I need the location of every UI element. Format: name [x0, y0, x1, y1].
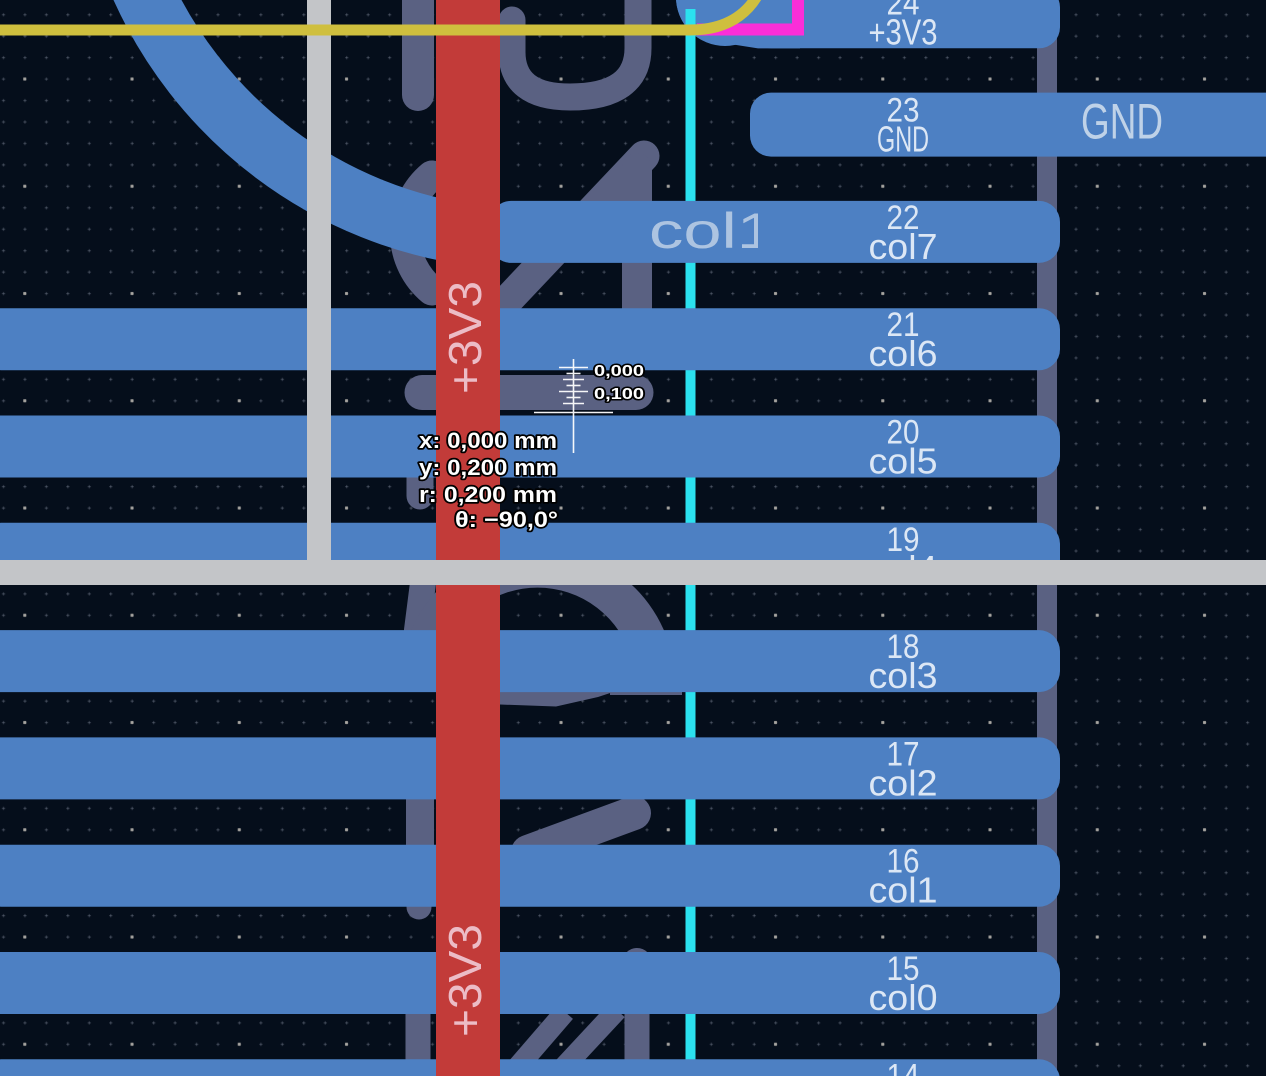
svg-text:GND: GND — [1081, 94, 1163, 150]
svg-text:col7: col7 — [869, 226, 938, 267]
svg-text:+3V3: +3V3 — [869, 11, 938, 52]
svg-text:col0: col0 — [869, 977, 938, 1018]
svg-text:+3V3: +3V3 — [439, 924, 491, 1037]
svg-text:0,100: 0,100 — [594, 386, 644, 403]
svg-text:GND: GND — [877, 119, 929, 160]
svg-text:0,000: 0,000 — [594, 363, 644, 380]
svg-text:θ: −90,0°: θ: −90,0° — [455, 507, 558, 532]
svg-text:x: 0,000 mm: x: 0,000 mm — [419, 428, 557, 453]
svg-text:col3: col3 — [869, 655, 938, 696]
svg-text:+3V3: +3V3 — [439, 281, 491, 394]
svg-text:y: 0,200 mm: y: 0,200 mm — [419, 455, 557, 480]
svg-text:col1: col1 — [649, 203, 775, 259]
svg-text:col1: col1 — [869, 870, 938, 911]
svg-text:r: 0,200 mm: r: 0,200 mm — [419, 482, 557, 507]
svg-text:col2: col2 — [869, 762, 938, 803]
svg-text:14: 14 — [887, 1057, 920, 1076]
svg-text:col6: col6 — [869, 333, 938, 374]
svg-text:col5: col5 — [869, 441, 938, 482]
